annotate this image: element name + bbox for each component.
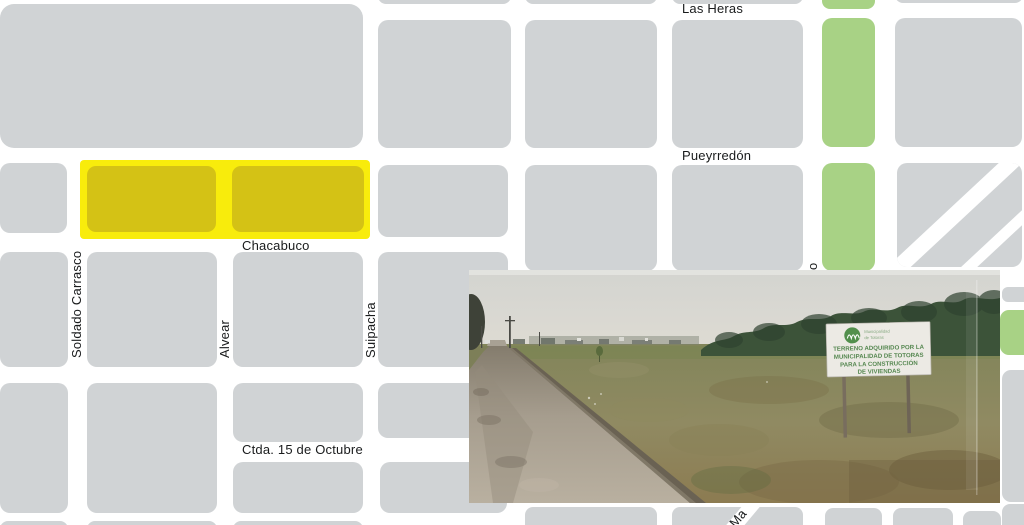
map-canvas: Las Heras Pueyrredón Chacabuco Ctda. 15 …	[0, 0, 1024, 525]
city-block	[233, 252, 363, 367]
city-block	[525, 507, 657, 525]
city-block	[87, 383, 217, 513]
sign-text-line4: DE VIVIENDAS	[858, 368, 901, 376]
city-block	[1002, 370, 1024, 502]
sign-org-line1: Municipalidad	[864, 329, 890, 335]
green-block	[1000, 310, 1024, 355]
green-block	[822, 18, 875, 147]
street-view-photo-svg: Municipalidad de Totoras TERRENO ADQUIRI…	[469, 270, 1000, 503]
highlighted-block-1	[87, 166, 216, 232]
street-label-las-heras: Las Heras	[682, 2, 743, 16]
green-block	[822, 0, 875, 9]
city-block	[672, 165, 803, 271]
city-block	[378, 20, 511, 148]
diagonal-street-gap	[912, 176, 1022, 267]
city-block	[525, 0, 657, 4]
city-block	[525, 20, 657, 148]
highlighted-block-2	[232, 166, 364, 232]
street-label-partial-o: o	[806, 263, 820, 270]
city-block	[233, 521, 363, 525]
city-block	[895, 0, 1023, 3]
street-label-chacabuco: Chacabuco	[242, 239, 310, 253]
city-block	[0, 252, 68, 367]
city-block	[672, 20, 803, 148]
green-block	[822, 163, 875, 271]
city-block	[233, 462, 363, 513]
city-block	[895, 18, 1022, 147]
sign-org-line2: de Totoras	[864, 335, 884, 340]
city-block	[893, 508, 953, 525]
city-block	[1002, 504, 1024, 525]
city-block	[378, 0, 511, 4]
photo-distant-vehicle	[485, 340, 490, 344]
large-block-northwest	[0, 4, 363, 148]
street-label-soldado-carrasco: Soldado Carrasco	[70, 251, 84, 358]
city-block	[87, 252, 217, 367]
street-view-photo: Municipalidad de Totoras TERRENO ADQUIRI…	[469, 270, 1000, 503]
city-block	[378, 165, 508, 237]
city-block	[87, 521, 217, 525]
city-block	[0, 521, 68, 525]
street-label-ctda-15-de-octubre: Ctda. 15 de Octubre	[242, 443, 363, 457]
city-block	[1002, 287, 1024, 302]
photo-top-edge	[469, 270, 1000, 275]
city-block	[825, 508, 882, 525]
city-block	[963, 511, 1001, 525]
city-block	[0, 163, 67, 233]
city-block	[0, 383, 68, 513]
city-block-diagonal-ne	[897, 163, 1022, 267]
street-label-pueyrredon: Pueyrredón	[682, 149, 751, 163]
street-label-alvear: Alvear	[218, 320, 232, 358]
street-label-suipacha: Suipacha	[364, 302, 378, 358]
city-block	[525, 165, 657, 271]
diagonal-street-gap	[897, 163, 1022, 267]
photo-light-band	[966, 290, 978, 490]
city-block	[233, 383, 363, 442]
